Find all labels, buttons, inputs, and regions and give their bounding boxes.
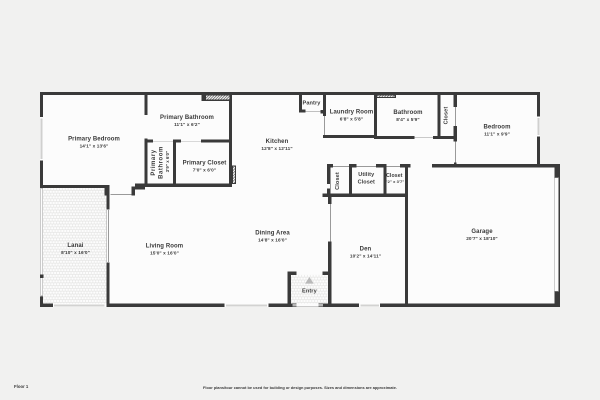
svg-text:Pantry: Pantry	[302, 100, 321, 106]
svg-text:Closet: Closet	[335, 172, 341, 190]
svg-text:Floor plans/tour cannot be use: Floor plans/tour cannot be used for buil…	[203, 385, 397, 390]
svg-text:Primary Bathroom: Primary Bathroom	[160, 115, 214, 121]
svg-text:8'10" x 16'0": 8'10" x 16'0"	[61, 250, 90, 255]
svg-text:8'4" x 5'9": 8'4" x 5'9"	[396, 117, 419, 122]
svg-text:Closet: Closet	[358, 180, 375, 186]
svg-text:Primary: Primary	[151, 149, 157, 175]
svg-text:15'0" x 16'0": 15'0" x 16'0"	[150, 251, 179, 256]
svg-text:10'2" x 14'11": 10'2" x 14'11"	[350, 254, 381, 259]
svg-text:11'1" x 6'2": 11'1" x 6'2"	[174, 122, 200, 127]
svg-text:Utility: Utility	[358, 172, 375, 178]
svg-text:3'2" x 3'7": 3'2" x 3'7"	[384, 179, 404, 184]
svg-text:Entry: Entry	[302, 289, 318, 295]
svg-text:Closet: Closet	[443, 107, 449, 125]
svg-text:3'9" x 6'0": 3'9" x 6'0"	[165, 151, 170, 173]
svg-text:Garage: Garage	[471, 229, 493, 235]
svg-text:Dining Area: Dining Area	[255, 231, 290, 237]
svg-text:Laundry Room: Laundry Room	[330, 110, 374, 116]
svg-text:14'8" x 16'0": 14'8" x 16'0"	[258, 238, 287, 243]
svg-text:Den: Den	[360, 247, 372, 253]
svg-text:Primary Bedroom: Primary Bedroom	[68, 137, 120, 143]
svg-text:12'8" x 12'11": 12'8" x 12'11"	[261, 146, 292, 151]
svg-text:Lanai: Lanai	[67, 243, 83, 249]
svg-text:Kitchen: Kitchen	[266, 139, 289, 145]
svg-text:6'8" x 5'8": 6'8" x 5'8"	[340, 117, 363, 122]
svg-text:Closet: Closet	[386, 173, 403, 179]
svg-text:7'0" x 6'0": 7'0" x 6'0"	[193, 168, 216, 173]
svg-text:Bathroom: Bathroom	[393, 110, 422, 116]
svg-text:11'1" x 9'9": 11'1" x 9'9"	[484, 132, 510, 137]
svg-text:Living Room: Living Room	[146, 244, 183, 250]
svg-text:20'7" x 18'10": 20'7" x 18'10"	[466, 236, 498, 241]
svg-text:14'1" x 13'6": 14'1" x 13'6"	[80, 144, 109, 149]
svg-text:Bedroom: Bedroom	[483, 125, 510, 131]
svg-text:Floor 1: Floor 1	[14, 384, 29, 389]
svg-text:Bathroom: Bathroom	[158, 146, 164, 179]
svg-text:Primary Closet: Primary Closet	[183, 161, 227, 167]
